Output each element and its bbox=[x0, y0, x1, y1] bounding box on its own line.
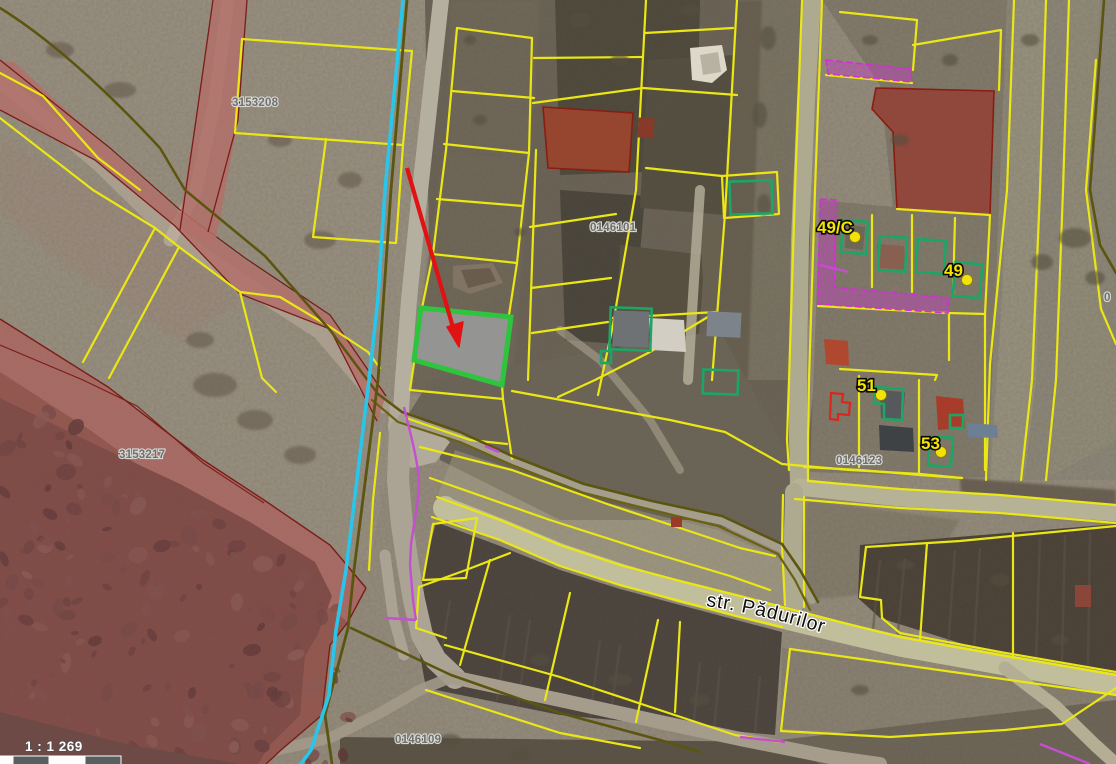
svg-text:0146123: 0146123 bbox=[836, 455, 882, 467]
svg-text:49/C: 49/C bbox=[817, 218, 853, 237]
svg-text:3153208: 3153208 bbox=[232, 97, 279, 109]
svg-text:0146101: 0146101 bbox=[590, 222, 637, 234]
svg-text:0: 0 bbox=[1104, 292, 1111, 304]
svg-text:1 : 1 269: 1 : 1 269 bbox=[25, 739, 83, 754]
svg-text:3153217: 3153217 bbox=[119, 449, 165, 461]
svg-text:53: 53 bbox=[921, 434, 940, 453]
svg-text:0146109: 0146109 bbox=[395, 734, 441, 746]
svg-text:51: 51 bbox=[857, 376, 876, 395]
svg-text:49: 49 bbox=[944, 261, 963, 280]
